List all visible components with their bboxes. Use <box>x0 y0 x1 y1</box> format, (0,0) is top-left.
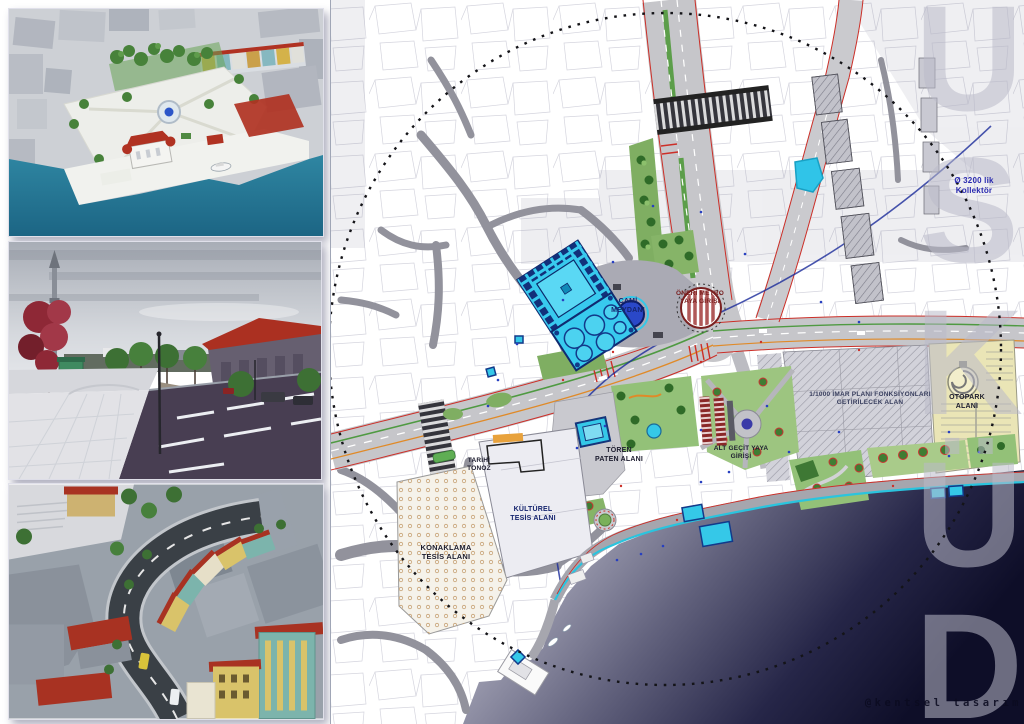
skating-pool <box>576 417 610 447</box>
street-level-boulevard-render <box>8 241 322 480</box>
playground-park <box>611 376 699 452</box>
aerial-street-facades-render <box>8 483 324 720</box>
aerial-waterfront-square-render <box>8 8 324 237</box>
render3-scene <box>9 484 323 719</box>
presentation-board: Ü S K Ü D Ø 3200 lik Kollektör CAMİ MEYD… <box>0 0 1024 724</box>
master-plan-map: Ü S K Ü D <box>330 0 1024 724</box>
render2-scene <box>9 242 321 479</box>
background-letters: Ü S K Ü D <box>915 0 1023 724</box>
svg-text:S: S <box>919 126 1019 294</box>
svg-text:K: K <box>915 278 1023 446</box>
roundabout <box>594 509 616 531</box>
underpass-entrances <box>699 395 735 447</box>
render1-scene <box>9 9 323 236</box>
svg-text:Ü: Ü <box>915 430 1023 598</box>
plan-svg: Ü S K Ü D <box>331 0 1024 724</box>
svg-text:Ü: Ü <box>915 0 1023 142</box>
kentsel-tasarim-watermark: @kentsel tasarım <box>810 697 1022 709</box>
